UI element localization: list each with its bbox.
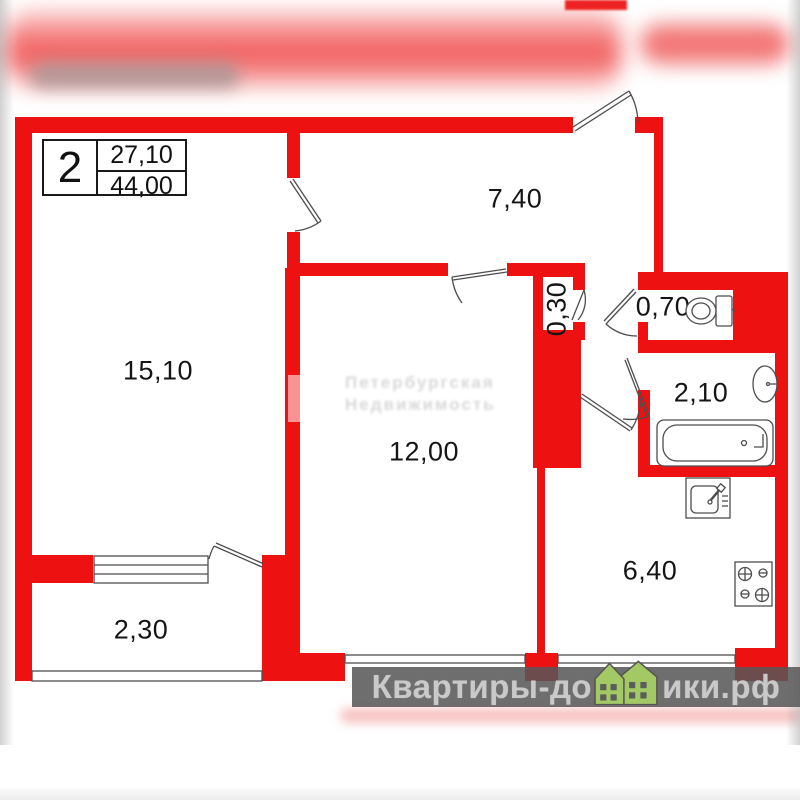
center-watermark-line1: Петербургская [345,372,496,394]
center-watermark: Петербургская Недвижимость [345,372,496,416]
stove-icon [735,562,772,606]
green-houses-icon [593,659,661,705]
kitchen-sink-icon [686,478,730,518]
site-watermark-bar: Квартиры-до ики.рф [352,667,800,707]
wc-door [604,289,637,336]
floorplan-page: 2 27,10 44,00 15,10 7,40 0,30 0,70 2,10 … [0,0,800,800]
kitchen-door [580,394,641,431]
closet-door [572,290,585,320]
balcony-railing [32,671,262,681]
watermark-text-right: ики.рф [662,668,780,706]
faint-logo-ghost [288,375,307,422]
toilet-icon [686,296,735,326]
center-watermark-line2: Недвижимость [345,394,496,416]
room12-window [345,655,525,663]
entrance-door [573,91,638,131]
sink-icon [753,366,777,402]
watermark-text-left: Квартиры-до [372,668,592,706]
bathroom-door [623,358,649,419]
living-room-door [290,179,321,231]
balcony-door [209,543,264,567]
bathtub-icon [657,420,773,466]
living-room-window [94,556,208,583]
room12-door [452,269,507,303]
